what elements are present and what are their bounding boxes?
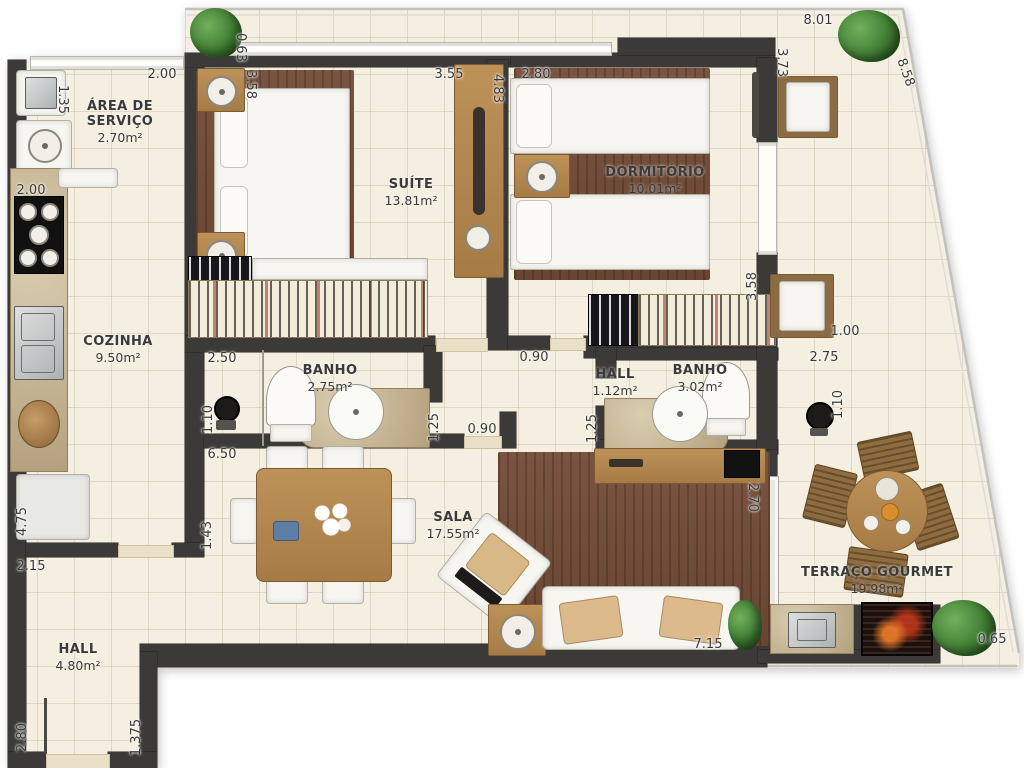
wall <box>757 348 777 454</box>
floor-plan: 8.01 8.58 0.63 2.00 1.35 2.00 3.58 3.55 … <box>0 0 1024 768</box>
pillow <box>516 84 552 148</box>
tv <box>724 450 760 478</box>
upper-cabinet <box>58 168 118 188</box>
fruit-basket <box>18 400 60 448</box>
room-label: COZINHA 9.50m² <box>58 335 178 365</box>
sun-lounger <box>778 76 838 138</box>
plant <box>728 600 762 650</box>
dimension-label: 1.10 <box>186 408 230 430</box>
room-label: HALL 4.80m² <box>23 643 133 673</box>
dimension-label: 2.00 <box>140 63 184 85</box>
window <box>206 42 612 56</box>
dimension-label: 3.58 <box>228 73 272 95</box>
terrace-sink <box>788 612 836 648</box>
dimension-label: 8.58 <box>883 61 927 83</box>
dimension-label: 4.83 <box>475 77 519 99</box>
room-label: ÁREA DE SERVIÇO 2.70m² <box>65 100 175 145</box>
dimension-label: 7.15 <box>686 633 730 655</box>
wall <box>596 348 778 360</box>
toilet-tank <box>270 424 312 442</box>
dimension-label: 6.50 <box>200 443 244 465</box>
dimension-label: 1.00 <box>823 320 867 342</box>
dimension-label: 2.80 <box>0 726 44 748</box>
pillow <box>516 200 552 264</box>
barbecue-grill <box>861 602 933 656</box>
dimension-label: 3.73 <box>759 51 803 73</box>
floor-lamp-base <box>810 428 828 436</box>
dimension-label: 2.80 <box>514 63 558 85</box>
dimension-label: 0.90 <box>512 346 556 368</box>
dimension-label: 2.75 <box>802 346 846 368</box>
dimension-label: 3.58 <box>730 275 774 297</box>
dimension-label: 8.01 <box>796 9 840 31</box>
door-threshold <box>46 754 110 768</box>
wall <box>618 38 775 55</box>
apartment-plan: 8.01 8.58 0.63 2.00 1.35 2.00 3.58 3.55 … <box>0 0 1024 768</box>
dimension-label: 3.55 <box>427 63 471 85</box>
dimension-label: 1.25 <box>412 416 456 438</box>
dining-chair <box>230 498 258 544</box>
washer-drum <box>28 129 62 163</box>
door-threshold <box>118 545 174 558</box>
dimension-label: 1.25 <box>570 417 614 439</box>
dimension-label: 2.70 <box>730 486 774 508</box>
wall <box>8 752 46 768</box>
dimension-label: 2.00 <box>9 179 53 201</box>
table-lamp <box>500 614 536 650</box>
closet-top <box>252 258 428 280</box>
room-label: BANHO 3.02m² <box>645 364 755 394</box>
room-label: DORMITÓRIO 10.01m² <box>580 166 730 196</box>
cooktop <box>14 196 64 274</box>
kitchen-sink <box>14 306 64 380</box>
dimension-label: 4.75 <box>0 510 44 532</box>
dimension-label: 0.90 <box>460 418 504 440</box>
dorm-closet-shelves <box>588 294 640 346</box>
plant <box>838 10 900 62</box>
room-label: SALA 17.55m² <box>398 511 508 541</box>
door-leaf <box>44 698 47 754</box>
dimension-label: 0.63 <box>218 36 262 58</box>
shower-glass <box>262 350 264 446</box>
dimension-label: 1.375 <box>115 726 159 748</box>
dimension-label: 0.65 <box>970 628 1014 650</box>
table-lamp <box>526 161 558 193</box>
dimension-label: 1.43 <box>185 524 229 546</box>
dimension-label: 2.15 <box>9 555 53 577</box>
terrace-round-table <box>846 470 928 552</box>
window <box>758 142 777 255</box>
room-label: TERRAÇO GOURMET 19.98m² <box>777 566 977 596</box>
room-label: SUÍTE 13.81m² <box>351 178 471 208</box>
dorm-closet-clothes <box>638 294 776 346</box>
dining-table <box>256 468 392 582</box>
closet-shelves <box>188 256 252 282</box>
closet-clothes <box>188 280 428 338</box>
door-threshold <box>436 338 488 352</box>
door-leaf <box>752 72 759 138</box>
dimension-label: 2.50 <box>200 347 244 369</box>
room-label: BANHO 2.75m² <box>275 364 385 394</box>
dimension-label: 1.10 <box>816 393 860 415</box>
toilet-tank <box>706 418 746 436</box>
